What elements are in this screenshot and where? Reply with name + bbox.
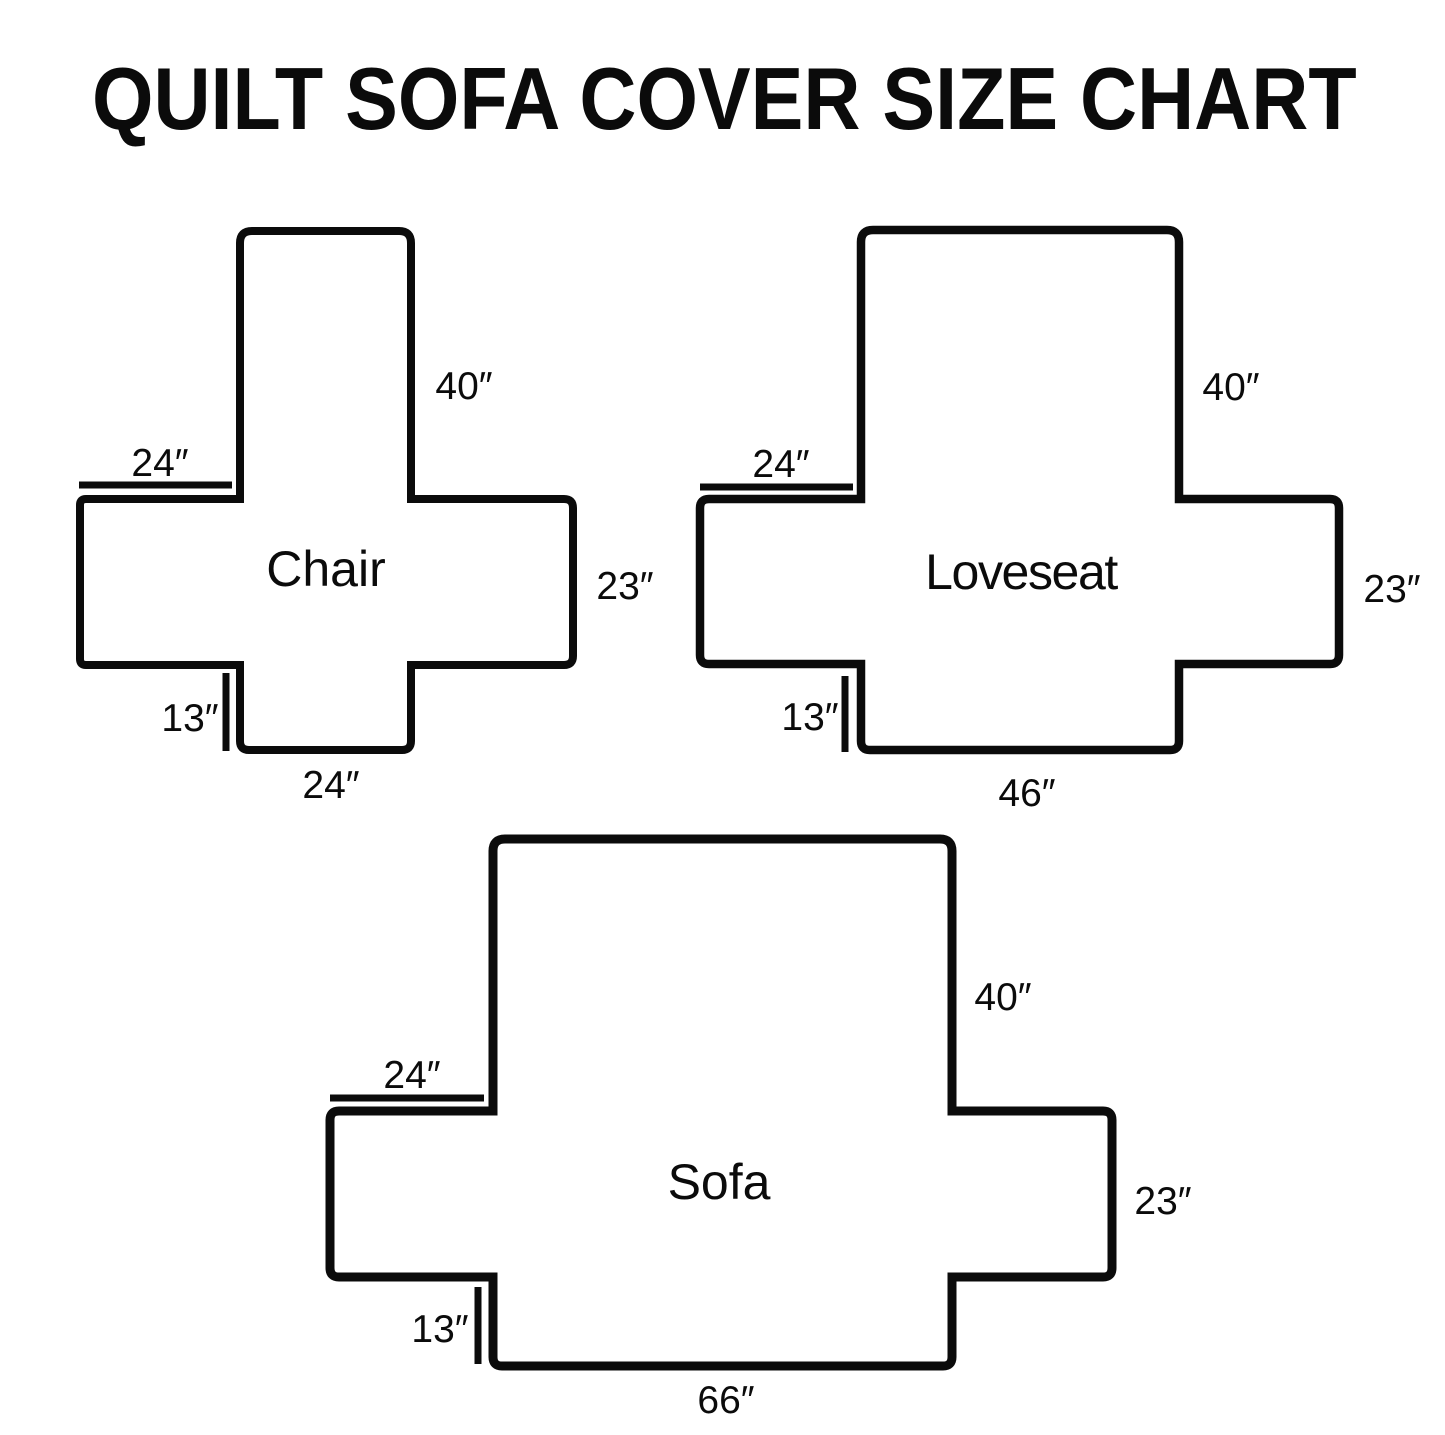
svg-text:24″: 24″ [302,764,359,807]
svg-text:23″: 23″ [596,565,653,608]
svg-text:46″: 46″ [998,772,1055,815]
svg-text:Sofa: Sofa [668,1154,771,1210]
svg-text:24″: 24″ [131,442,188,485]
svg-text:24″: 24″ [383,1054,440,1097]
svg-text:23″: 23″ [1134,1180,1191,1223]
svg-text:24″: 24″ [752,443,809,486]
svg-text:QUILT SOFA COVER SIZE CHART: QUILT SOFA COVER SIZE CHART [92,49,1357,148]
svg-text:Chair: Chair [266,541,385,597]
svg-text:66″: 66″ [697,1379,754,1422]
svg-text:Loveseat: Loveseat [925,544,1118,600]
svg-text:23″: 23″ [1363,568,1420,611]
svg-text:40″: 40″ [435,365,492,408]
svg-text:40″: 40″ [1202,366,1259,409]
svg-text:40″: 40″ [974,976,1031,1019]
svg-text:13″: 13″ [161,697,218,740]
svg-text:13″: 13″ [781,696,838,739]
svg-text:13″: 13″ [411,1308,468,1351]
